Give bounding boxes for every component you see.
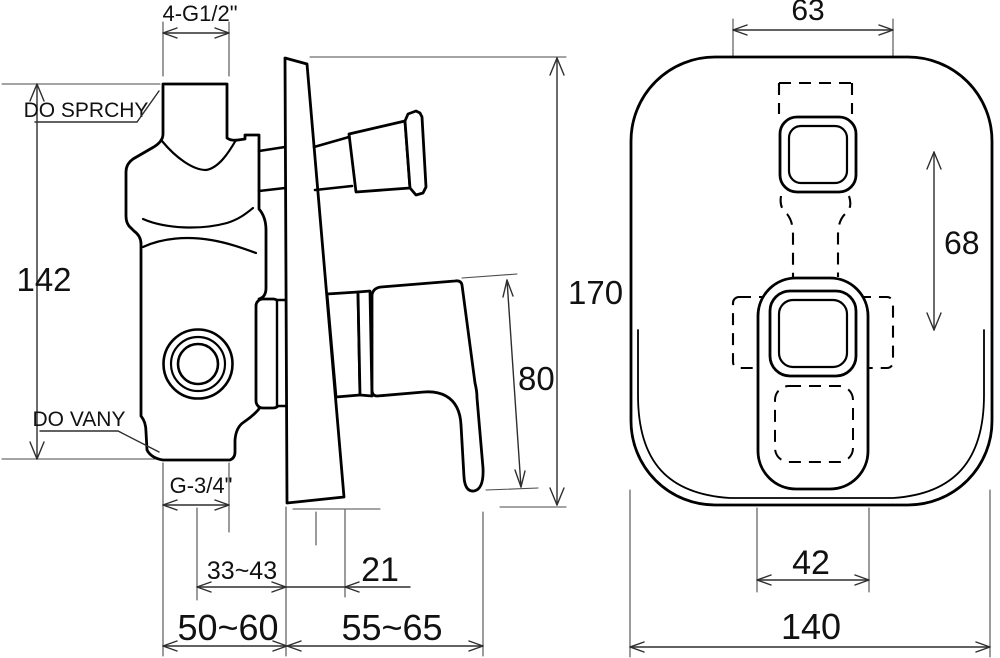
to-shower-label: DO SPRCHY [24,99,149,122]
dim-depth-range-label: 33~43 [207,557,277,585]
diverter-knob-outer [780,117,856,192]
dim-plate-thickness-label: 21 [361,551,399,589]
side-view: 4-G1/2" DO SPRCHY 142 DO VANY G-3/4" 33~… [2,1,623,656]
dim-valve-width-label: 63 [791,0,824,27]
dim-bottom-thread-label: G-3/4" [170,473,233,498]
dim-handle-length-label: 80 [518,360,555,397]
handle-lever [372,281,483,491]
drawing-canvas: 4-G1/2" DO SPRCHY 142 DO VANY G-3/4" 33~… [0,0,1000,658]
shower-port-stem [259,147,285,191]
dim-overall-height-label: 170 [568,274,623,311]
dim-centers-label: 68 [944,225,980,261]
dim-handle-base-label: 42 [792,544,830,582]
knob-stem [314,137,352,190]
dim-top-thread-label: 4-G1/2" [162,1,237,26]
handle-base-band [358,291,372,396]
trim-plate-side [285,58,344,503]
to-shower-callout: DO SPRCHY [24,91,159,122]
dim-plate-width-label: 140 [781,606,841,647]
dim-install-depth-right-label: 55~65 [341,607,442,648]
diverter-knob-front [780,117,856,192]
mixer-body [126,84,287,460]
technical-drawing: 4-G1/2" DO SPRCHY 142 DO VANY G-3/4" 33~… [0,0,1000,658]
body-outline [126,84,266,460]
handle-front [758,278,868,489]
dim-install-depth-left-label: 50~60 [177,607,278,648]
to-bath-leader [40,431,159,452]
lever-handle-side [327,281,483,491]
diverter-knob-side [314,111,426,195]
to-bath-label: DO VANY [33,408,126,431]
dim-body-height-label: 142 [16,261,71,298]
knob-body [349,121,410,192]
front-view: 63 68 42 140 [630,0,992,657]
